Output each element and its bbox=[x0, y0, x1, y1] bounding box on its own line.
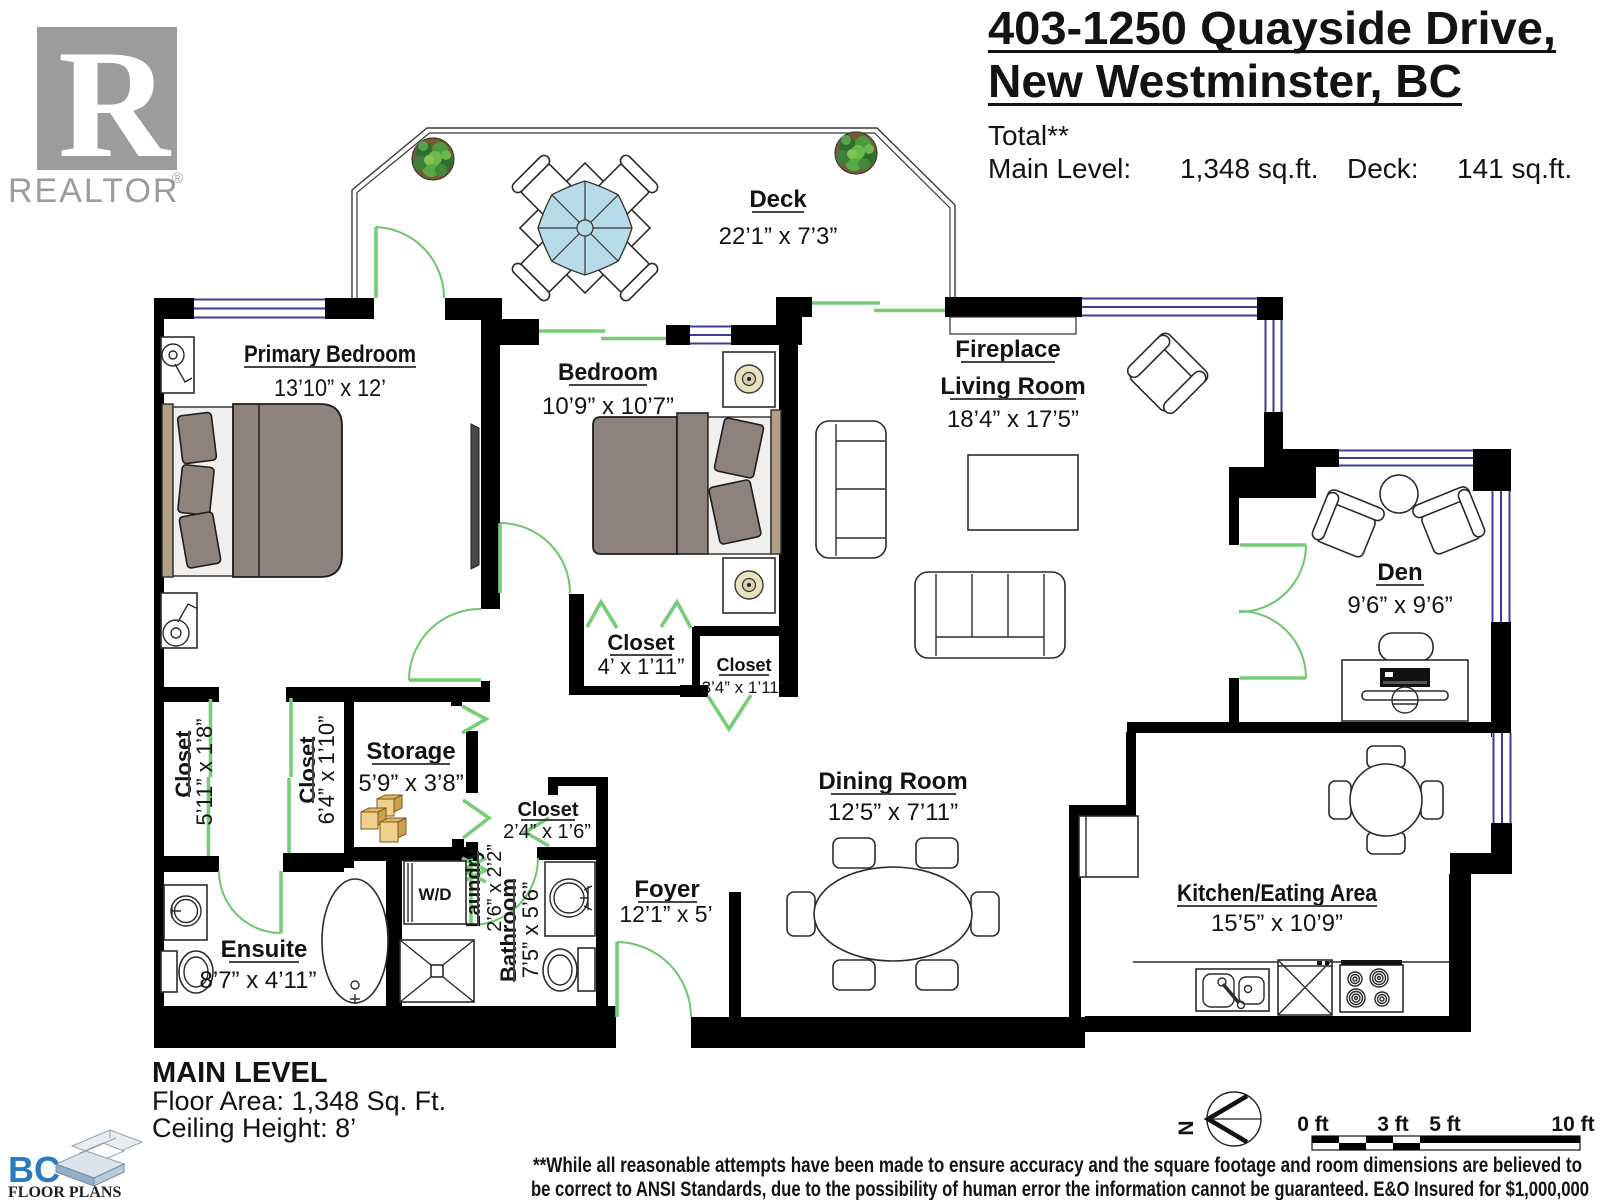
svg-text:13’10” x 12’: 13’10” x 12’ bbox=[274, 375, 386, 402]
svg-text:18’4” x 17’5”: 18’4” x 17’5” bbox=[947, 406, 1079, 433]
svg-text:7’5” x 5’6”: 7’5” x 5’6” bbox=[518, 882, 543, 979]
svg-text:Fireplace: Fireplace bbox=[955, 336, 1060, 363]
svg-text:9’6” x 9’6”: 9’6” x 9’6” bbox=[1347, 592, 1452, 619]
svg-text:Closet: Closet bbox=[607, 630, 675, 655]
svg-text:Total**: Total** bbox=[988, 120, 1069, 151]
svg-text:be correct to ANSI Standards,: be correct to ANSI Standards, due to the… bbox=[531, 1178, 1589, 1200]
svg-text:Storage: Storage bbox=[366, 738, 455, 765]
svg-text:W/D: W/D bbox=[418, 885, 451, 904]
svg-text:®: ® bbox=[172, 170, 183, 187]
svg-text:Ceiling Height: 8’: Ceiling Height: 8’ bbox=[152, 1113, 356, 1143]
svg-text:3’4” x 1’11”: 3’4” x 1’11” bbox=[702, 678, 785, 697]
svg-text:Foyer: Foyer bbox=[634, 876, 699, 903]
svg-text:FLOOR PLANS: FLOOR PLANS bbox=[8, 1184, 121, 1200]
svg-text:REALTOR: REALTOR bbox=[8, 172, 179, 210]
svg-text:Closet: Closet bbox=[517, 799, 578, 821]
svg-text:5’11” x 1’8”: 5’11” x 1’8” bbox=[192, 718, 217, 825]
svg-text:15’5” x 10’9”: 15’5” x 10’9” bbox=[1211, 910, 1343, 937]
svg-text:0 ft: 0 ft bbox=[1297, 1113, 1329, 1136]
svg-text:Main Level:: Main Level: bbox=[988, 153, 1131, 184]
svg-text:**While all reasonable attempt: **While all reasonable attempts have bee… bbox=[533, 1154, 1582, 1177]
svg-text:403-1250 Quayside Drive,: 403-1250 Quayside Drive, bbox=[988, 2, 1556, 54]
svg-text:1,348 sq.ft.: 1,348 sq.ft. bbox=[1180, 153, 1319, 184]
svg-text:12’5” x 7’11”: 12’5” x 7’11” bbox=[828, 799, 958, 826]
svg-text:Laundry: Laundry bbox=[463, 848, 485, 928]
svg-text:10’9” x 10’7”: 10’9” x 10’7” bbox=[542, 393, 674, 420]
svg-text:MAIN LEVEL: MAIN LEVEL bbox=[152, 1057, 328, 1089]
svg-text:N: N bbox=[1175, 1120, 1198, 1135]
svg-text:Primary Bedroom: Primary Bedroom bbox=[244, 341, 416, 368]
svg-text:Deck: Deck bbox=[749, 186, 807, 213]
svg-text:Den: Den bbox=[1377, 559, 1422, 586]
svg-text:6’4” x 1’10”: 6’4” x 1’10” bbox=[314, 716, 339, 825]
svg-text:Floor Area: 1,348 Sq. Ft.: Floor Area: 1,348 Sq. Ft. bbox=[152, 1086, 446, 1116]
svg-text:141 sq.ft.: 141 sq.ft. bbox=[1457, 153, 1572, 184]
svg-text:New Westminster, BC: New Westminster, BC bbox=[988, 55, 1462, 107]
svg-text:4’ x 1’11”: 4’ x 1’11” bbox=[598, 654, 685, 679]
svg-text:8’7” x 4’11”: 8’7” x 4’11” bbox=[200, 967, 317, 994]
svg-text:R: R bbox=[58, 18, 172, 190]
svg-text:Closet: Closet bbox=[716, 655, 771, 675]
svg-text:Kitchen/Eating Area: Kitchen/Eating Area bbox=[1177, 880, 1378, 907]
svg-text:Bedroom: Bedroom bbox=[558, 359, 658, 386]
svg-text:2’4” x 1’6”: 2’4” x 1’6” bbox=[503, 821, 591, 843]
svg-text:22’1” x 7’3”: 22’1” x 7’3” bbox=[719, 223, 838, 250]
svg-text:10 ft: 10 ft bbox=[1551, 1113, 1594, 1136]
svg-text:Deck:: Deck: bbox=[1347, 153, 1419, 184]
svg-text:12’1” x 5’: 12’1” x 5’ bbox=[619, 901, 712, 927]
svg-text:5’9” x 3’8”: 5’9” x 3’8” bbox=[358, 770, 463, 797]
svg-text:5 ft: 5 ft bbox=[1429, 1113, 1461, 1136]
svg-text:3 ft: 3 ft bbox=[1377, 1113, 1409, 1136]
svg-text:Dining Room: Dining Room bbox=[818, 768, 967, 795]
svg-text:Ensuite: Ensuite bbox=[221, 936, 308, 963]
svg-text:Living Room: Living Room bbox=[940, 373, 1085, 400]
